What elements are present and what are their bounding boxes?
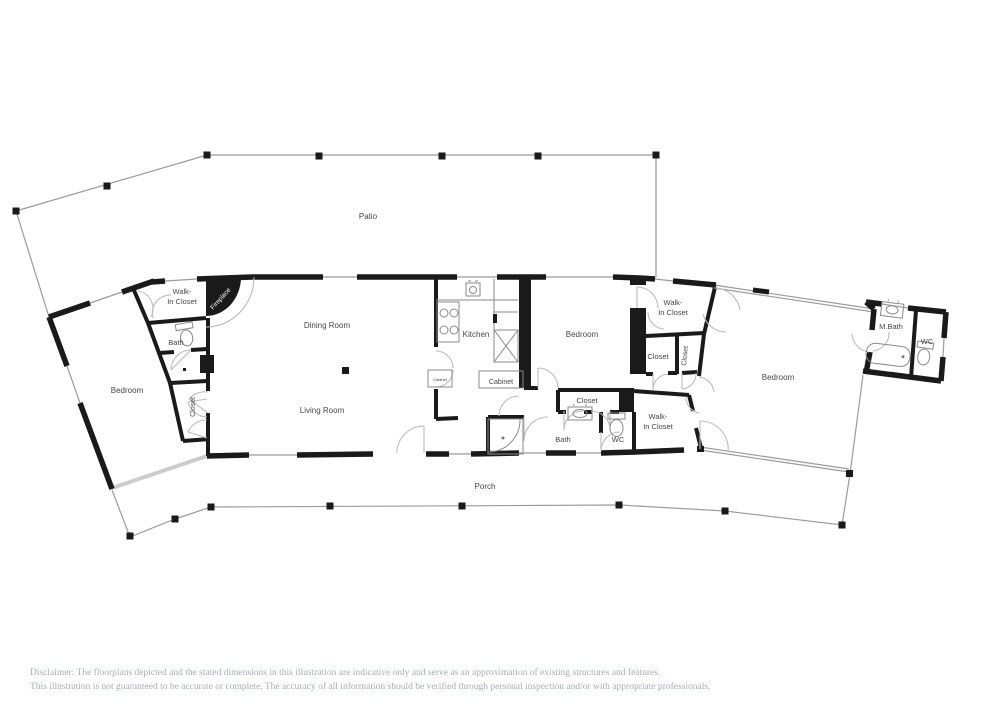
post-icon xyxy=(459,503,466,510)
post-icon xyxy=(13,208,20,215)
post-icon xyxy=(127,533,134,540)
room-label-bath-left: Bath xyxy=(168,338,183,347)
door-icon xyxy=(524,417,548,441)
post-icon xyxy=(439,153,446,160)
post-icon xyxy=(722,508,729,515)
room-label-living-room: Living Room xyxy=(300,406,345,415)
floorplan-drawing: PatioWalk-In ClosetBathBedroomClosetFire… xyxy=(0,0,1000,707)
shelf-mark xyxy=(493,314,497,323)
room-label-walk-in-closet-left: Walk-In Closet xyxy=(167,287,198,306)
disclaimer: Disclaimer: The floorplans depicted and … xyxy=(30,666,970,694)
room-label-patio: Patio xyxy=(359,212,378,221)
porch-step xyxy=(112,456,207,488)
room-label-bath-middle: Bath xyxy=(555,435,570,444)
door-icon xyxy=(188,420,207,438)
room-label-wc-right: WC xyxy=(921,337,934,346)
room-label-wc-middle: WC xyxy=(612,435,625,444)
post-icon xyxy=(204,152,211,159)
porch-outline xyxy=(112,447,850,537)
room-label-walk-in-closet-right-bottom: Walk-In Closet xyxy=(643,412,674,431)
post-icon xyxy=(653,152,660,159)
door-icon xyxy=(637,287,658,308)
room-label-cabinet-small: Cabinet xyxy=(433,377,448,382)
door-icon xyxy=(653,374,668,390)
post-icon xyxy=(327,503,334,510)
post-icon xyxy=(316,153,323,160)
room-label-m-bath: M.Bath xyxy=(879,322,903,331)
floorplan-page: PatioWalk-In ClosetBathBedroomClosetFire… xyxy=(0,0,1000,707)
room-label-closet-middle: Closet xyxy=(576,396,598,405)
wall-chunk xyxy=(619,388,634,412)
posts xyxy=(13,152,854,540)
door-stop-dot xyxy=(183,368,186,371)
wall-jamb xyxy=(753,290,769,292)
post-icon xyxy=(839,522,846,529)
room-label-porch: Porch xyxy=(475,482,496,491)
patio-outline xyxy=(16,155,656,317)
room-label-cabinet: Cabinet xyxy=(489,379,513,386)
room-label-bedroom-middle: Bedroom xyxy=(566,330,599,339)
door-icon xyxy=(397,426,424,453)
stove-icon xyxy=(437,302,459,342)
sink-icon xyxy=(466,283,480,296)
structural-post xyxy=(342,367,349,374)
post-icon xyxy=(208,504,215,511)
post-icon xyxy=(616,502,623,509)
floorplan-svg: PatioWalk-In ClosetBathBedroomClosetFire… xyxy=(0,0,1000,707)
closet-wall-mass xyxy=(630,308,646,374)
door-icon xyxy=(699,377,714,392)
door-icon xyxy=(538,368,558,388)
post-icon xyxy=(104,183,111,190)
wall-chunk xyxy=(200,355,214,373)
disclaimer-line-1: Disclaimer: The floorplans depicted and … xyxy=(30,666,970,680)
post-icon xyxy=(846,470,853,477)
room-label-bedroom-left: Bedroom xyxy=(111,386,144,395)
corner-bathtub-icon xyxy=(488,419,523,454)
post-icon xyxy=(172,516,179,523)
door-icon xyxy=(682,373,696,389)
porch-railing xyxy=(700,447,849,472)
room-label-closet-right: Closet xyxy=(647,352,669,361)
door-icon xyxy=(852,332,889,352)
sink-icon xyxy=(880,299,904,319)
room-label-closet-left: Closet xyxy=(190,397,197,417)
room-label-walk-in-closet-right-top: Walk-In Closet xyxy=(658,298,689,317)
windows xyxy=(67,277,944,455)
room-label-bedroom-right: Bedroom xyxy=(762,373,795,382)
post-icon xyxy=(535,153,542,160)
door-icon xyxy=(499,396,519,416)
disclaimer-line-2: This illustration is not guaranteed to b… xyxy=(30,680,970,694)
room-label-dining-room: Dining Room xyxy=(304,321,351,330)
counter-lines xyxy=(436,279,518,362)
room-label-closet-right-narrow: Closet xyxy=(681,346,690,367)
room-label-kitchen: Kitchen xyxy=(463,330,490,339)
wall-jamb xyxy=(630,277,646,285)
